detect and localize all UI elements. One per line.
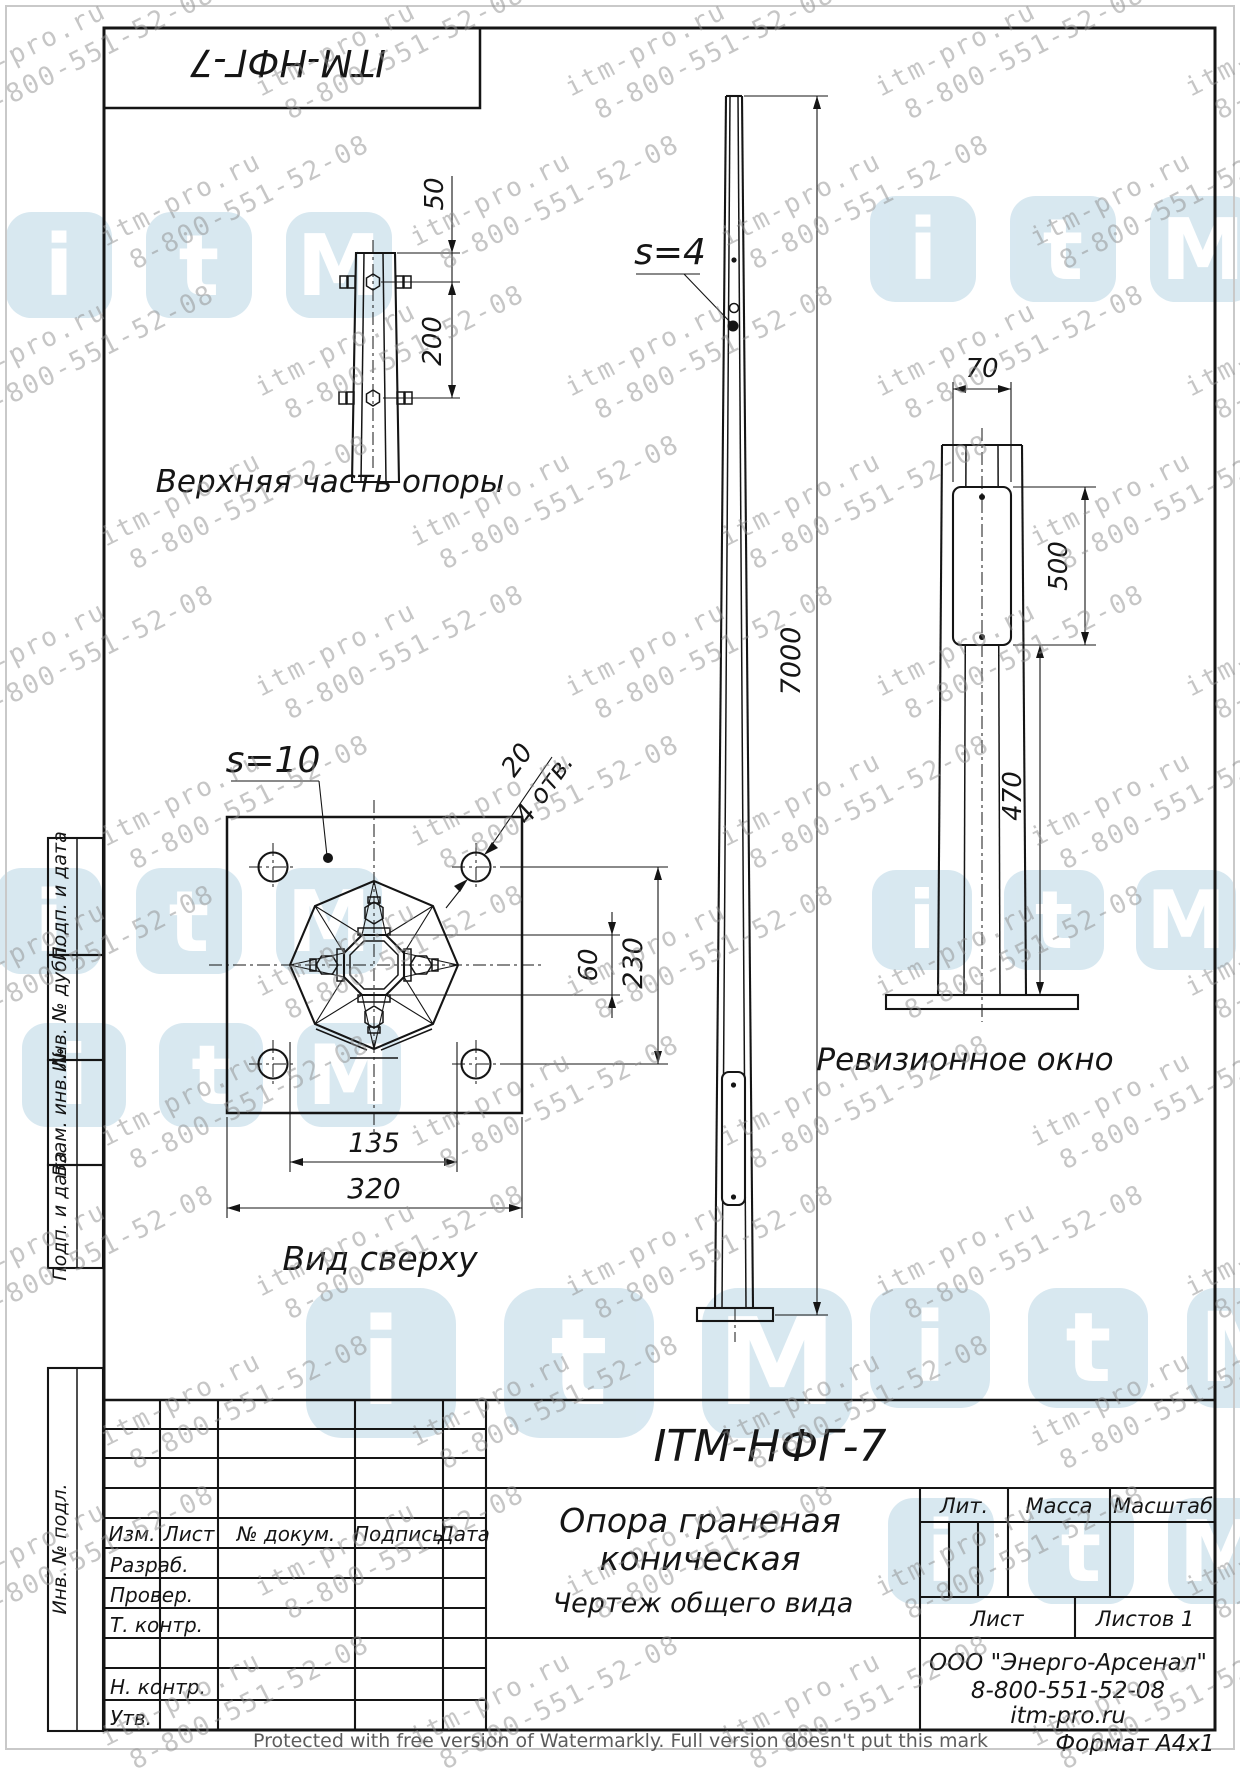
- cell-massa: Масса: [1026, 1494, 1093, 1518]
- sidebar-item: Подп. и дата: [49, 1151, 71, 1280]
- dim-470: 470: [998, 771, 1028, 821]
- col-doc: № докум.: [236, 1522, 336, 1546]
- col-izm: Изм.: [108, 1522, 155, 1546]
- sidebar: Подп. и дата Инв. № дубл. Взам. инв. № П…: [48, 831, 103, 1731]
- company-phone: 8-800-551-52-08: [971, 1678, 1165, 1704]
- label-revision-window: Ревизионное окно: [816, 1042, 1113, 1078]
- col-list: Лист: [163, 1522, 216, 1546]
- row-nkontr: Н. контр.: [110, 1675, 206, 1699]
- dim-70: 70: [965, 354, 998, 384]
- doc-designation: ITM-НФГ-7: [653, 1421, 886, 1472]
- format-note: Формат А4х1: [1055, 1731, 1214, 1755]
- label-top-part: Верхняя часть опоры: [156, 464, 505, 500]
- col-date: Дата: [437, 1522, 490, 1546]
- view-top-part: 50 200 Верхняя часть опоры: [156, 176, 505, 500]
- dim-50: 50: [420, 177, 450, 210]
- dim-135: 135: [348, 1128, 400, 1159]
- cell-masshtab: Масштаб: [1113, 1494, 1213, 1518]
- row-utv: Утв.: [110, 1706, 152, 1730]
- drawing-svg: ITM-НФГ-7 50 200 Верхняя часть опоры: [0, 0, 1240, 1755]
- view-revision-window: 70 500 470 Ревизионное окно: [816, 354, 1113, 1078]
- label-s4: s=4: [634, 232, 706, 273]
- corner-stamp: ITM-НФГ-7: [104, 28, 480, 108]
- doc-name-line1: Опора граненая: [559, 1501, 840, 1540]
- label-s10: s=10: [226, 740, 321, 781]
- drawing-sheet: itMitMitMitMitMitMitMitM ITM-НФГ-7: [0, 0, 1240, 1755]
- doc-name-line2: коническая: [599, 1539, 800, 1578]
- sidebar-item: Подп. и дата: [49, 831, 71, 960]
- dim-500: 500: [1044, 541, 1074, 591]
- doc-type: Чертеж общего вида: [553, 1588, 854, 1619]
- company-name: ООО "Энерго-Арсенал": [929, 1650, 1207, 1676]
- dim-200: 200: [418, 316, 448, 366]
- company-site: itm-pro.ru: [1010, 1703, 1126, 1729]
- sidebar-item: Инв. № подл.: [49, 1483, 71, 1614]
- view-top: s=10 20 4 отв. 60 230 135: [209, 738, 668, 1278]
- cell-list: Лист: [969, 1607, 1024, 1631]
- cell-listov: Листов 1: [1095, 1607, 1194, 1631]
- dim-7000: 7000: [776, 627, 807, 696]
- cell-lit: Лит.: [939, 1494, 988, 1518]
- row-razrab: Разраб.: [110, 1553, 189, 1577]
- title-block: Изм. Лист № докум. Подпись Дата Разраб. …: [104, 1400, 1215, 1755]
- row-prover: Провер.: [110, 1583, 193, 1607]
- dim-hole-20: 20: [496, 738, 540, 782]
- dim-320: 320: [347, 1172, 400, 1205]
- dim-230: 230: [618, 937, 649, 989]
- row-tkontr: Т. контр.: [110, 1613, 203, 1637]
- dim-60: 60: [574, 948, 604, 981]
- view-front: s=4 7000: [634, 96, 828, 1342]
- label-top-view: Вид сверху: [282, 1239, 478, 1278]
- watermark-protected-note: Protected with free version of Watermark…: [253, 1730, 988, 1752]
- corner-stamp-designation: ITM-НФГ-7: [190, 41, 386, 84]
- col-sign: Подпись: [354, 1522, 444, 1546]
